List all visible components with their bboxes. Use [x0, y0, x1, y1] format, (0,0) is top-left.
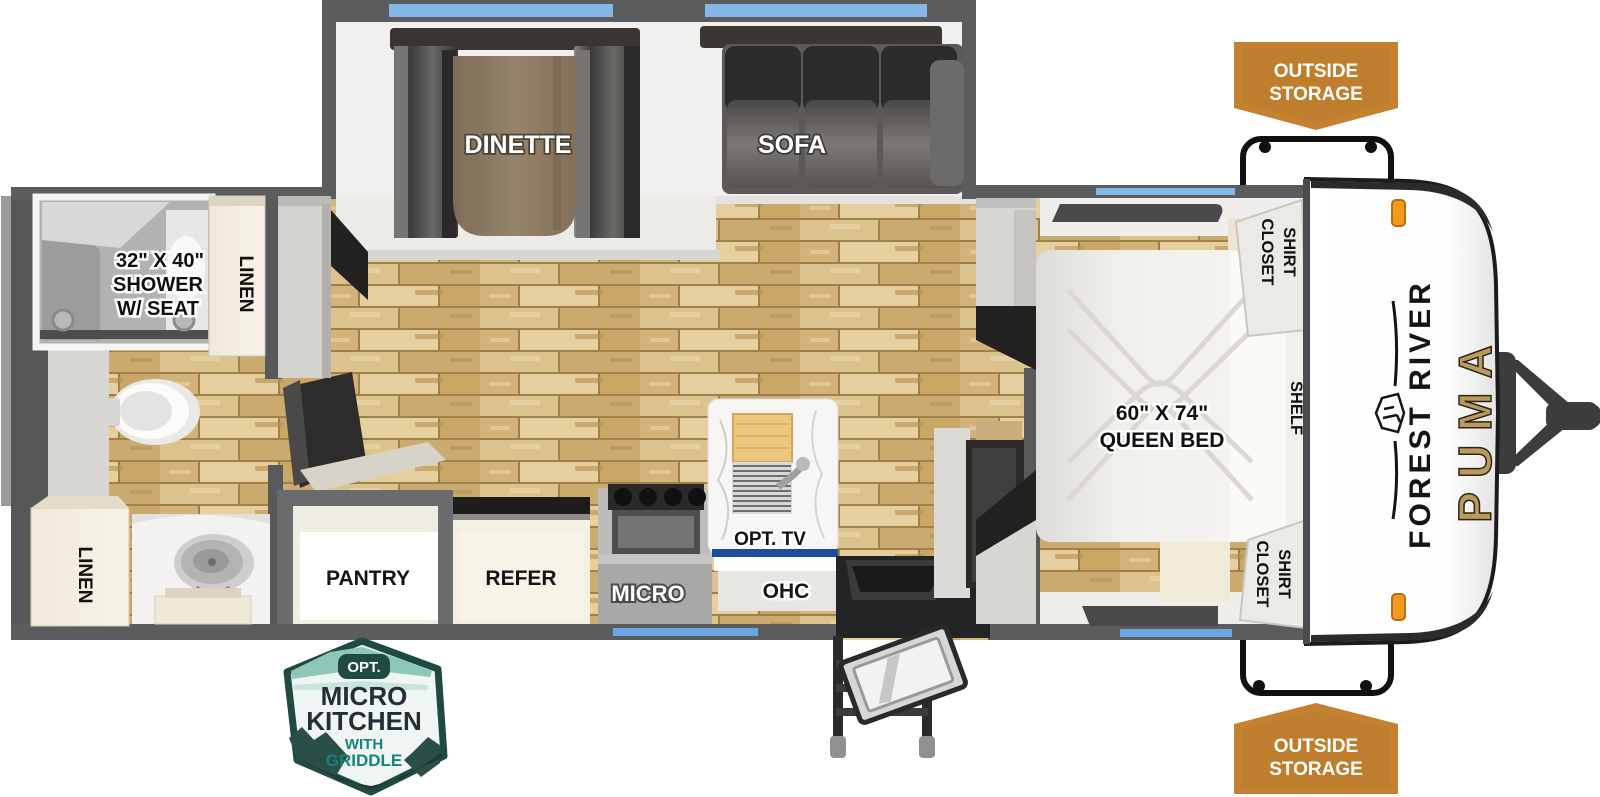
svg-text:OPT.: OPT.	[347, 659, 380, 676]
svg-text:SHIRT: SHIRT	[1280, 227, 1298, 277]
svg-text:OPT. TV: OPT. TV	[734, 529, 806, 550]
svg-text:OUTSIDE: OUTSIDE	[1274, 736, 1358, 757]
svg-text:STORAGE: STORAGE	[1269, 759, 1363, 780]
svg-text:FOREST RIVER: FOREST RIVER	[1404, 279, 1437, 549]
svg-text:SHOWER: SHOWER	[113, 274, 204, 296]
svg-text:MICRO: MICRO	[611, 581, 684, 606]
svg-text:CLOSET: CLOSET	[1253, 541, 1271, 608]
svg-text:DINETTE: DINETTE	[465, 131, 572, 159]
svg-text:CLOSET: CLOSET	[1258, 219, 1276, 286]
svg-text:GRIDDLE: GRIDDLE	[326, 751, 403, 770]
svg-text:KITCHEN: KITCHEN	[306, 706, 422, 736]
svg-text:W/ SEAT: W/ SEAT	[117, 298, 199, 320]
svg-text:STORAGE: STORAGE	[1269, 84, 1363, 105]
svg-text:OHC: OHC	[763, 580, 810, 603]
svg-text:PUMA: PUMA	[1449, 331, 1501, 522]
svg-text:REFER: REFER	[485, 567, 556, 590]
svg-text:SHELF: SHELF	[1287, 381, 1305, 435]
svg-text:SHIRT: SHIRT	[1275, 549, 1293, 599]
svg-text:OUTSIDE: OUTSIDE	[1274, 61, 1358, 82]
svg-text:SOFA: SOFA	[758, 131, 826, 159]
svg-text:QUEEN BED: QUEEN BED	[1100, 429, 1225, 452]
svg-text:32" X 40": 32" X 40"	[116, 250, 204, 272]
svg-text:60" X 74": 60" X 74"	[1116, 402, 1208, 425]
svg-text:LINEN: LINEN	[74, 547, 95, 604]
svg-text:LINEN: LINEN	[235, 256, 256, 313]
svg-text:PANTRY: PANTRY	[326, 567, 410, 590]
